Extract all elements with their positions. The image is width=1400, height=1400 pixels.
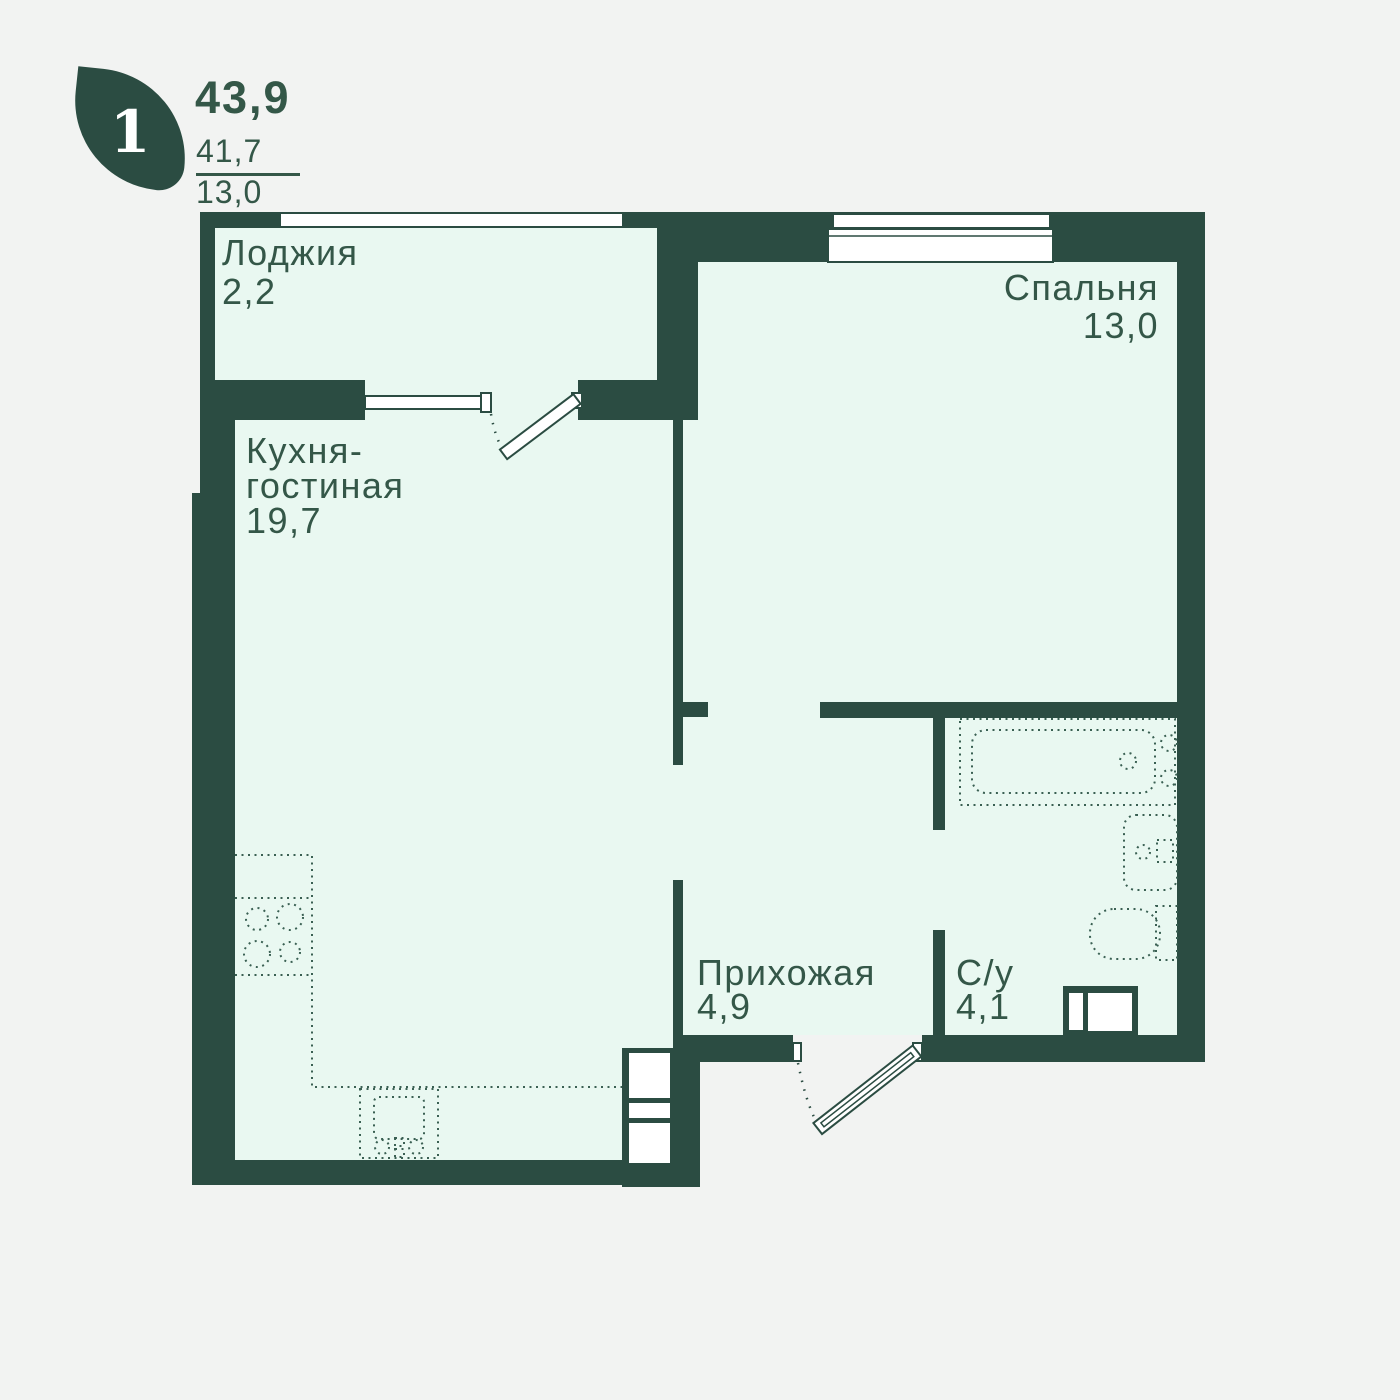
room-name: гостиная — [246, 468, 404, 503]
wall-segment — [200, 380, 365, 420]
kitchen-label: Кухня- гостиная 19,7 — [246, 433, 404, 538]
shaft-niche — [629, 1053, 670, 1098]
shaft-niche — [629, 1123, 670, 1163]
room-name: Лоджия — [222, 233, 359, 272]
window-jamb — [481, 393, 491, 412]
room-name: Прихожая — [697, 956, 876, 990]
room-name: Спальня — [1004, 269, 1159, 307]
wall-segment — [680, 1035, 793, 1062]
wall-segment — [922, 1035, 1205, 1062]
loggia-inner-window — [365, 396, 483, 409]
entrance-door — [793, 1043, 922, 1134]
floor-plan-page: 1 43,9 41,7 13,0 — [0, 0, 1400, 1400]
kitchen-hall-opening — [673, 765, 683, 880]
wall-segment — [578, 380, 657, 420]
wall-segment — [683, 702, 708, 717]
shaft-niche — [629, 1103, 670, 1118]
duct-niche — [1088, 993, 1132, 1031]
door-jamb — [793, 1043, 801, 1061]
bedroom-window-sill — [828, 229, 1053, 262]
bedroom-window — [833, 214, 1050, 228]
door-swing-arc — [798, 1063, 817, 1123]
room-name: Кухня- — [246, 433, 404, 468]
bedroom-label: Спальня 13,0 — [1004, 269, 1159, 345]
wall-segment — [1177, 212, 1205, 1062]
room-area: 19,7 — [246, 503, 404, 538]
loggia-window — [280, 213, 623, 227]
wall-segment — [673, 420, 683, 765]
room-name: С/у — [956, 956, 1015, 990]
wall-segment — [673, 880, 683, 1062]
bathroom-door-opening — [933, 830, 945, 930]
room-area: 4,1 — [956, 990, 1015, 1024]
room-area: 13,0 — [1004, 307, 1159, 345]
room-area: 2,2 — [222, 272, 359, 311]
bathroom-label: С/у 4,1 — [956, 956, 1015, 1024]
wall-segment — [192, 493, 235, 1185]
wall-segment — [933, 930, 945, 1035]
room-area: 4,9 — [697, 990, 876, 1024]
loggia-label: Лоджия 2,2 — [222, 233, 359, 311]
duct-niche — [1069, 993, 1083, 1030]
wall-segment — [200, 420, 235, 495]
hallway-label: Прихожая 4,9 — [697, 956, 876, 1024]
wall-segment — [820, 702, 1177, 718]
floor-plan — [0, 0, 1400, 1400]
wall-segment — [657, 212, 698, 420]
wall-segment — [933, 718, 945, 830]
vent-duct-icon — [1063, 986, 1138, 1037]
door-leaf — [813, 1045, 921, 1134]
vent-shaft — [629, 1053, 670, 1163]
